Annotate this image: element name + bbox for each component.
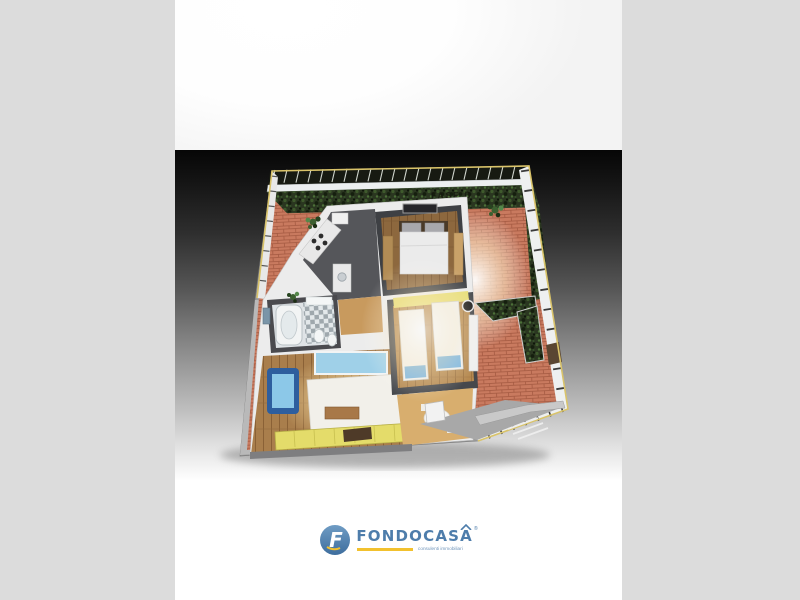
bedroom-window — [403, 204, 437, 213]
brand-wordmark: FONDOCASA — [356, 529, 473, 544]
armchair-blue — [267, 368, 299, 414]
bidet — [328, 334, 337, 346]
letterbox-right — [622, 0, 800, 600]
registered-mark: ® — [474, 527, 478, 532]
light-wash — [361, 258, 485, 402]
bath-sink — [306, 297, 332, 305]
kitchen-cabinet — [332, 213, 348, 224]
brand-tagline: consulenti immobiliari — [418, 547, 463, 552]
listing-photo: FASE D — [175, 0, 622, 600]
fondocasa-logo: F FONDOCASA ® consulenti immobiliari — [319, 524, 477, 556]
fondocasa-f-circle-icon: F — [319, 524, 351, 556]
planter-box — [425, 401, 445, 423]
coffee-table — [325, 407, 359, 419]
bed-pillow — [425, 223, 444, 233]
brand-underline — [357, 548, 413, 551]
floorplan-render: FASE D — [175, 0, 622, 600]
letterbox-left — [0, 0, 175, 600]
page: { "branding": { "name": "FONDOCASA", "ta… — [0, 0, 800, 600]
kitchen-sink — [338, 273, 346, 281]
bathroom — [263, 295, 341, 353]
logo-area: F FONDOCASA ® consulenti immobiliari — [175, 524, 622, 556]
bed-pillow — [402, 223, 421, 233]
bathroom-window — [263, 308, 270, 324]
toilet — [314, 330, 324, 343]
roof-accent-icon — [460, 524, 472, 530]
logo-text-block: FONDOCASA ® consulenti immobiliari — [356, 529, 477, 552]
